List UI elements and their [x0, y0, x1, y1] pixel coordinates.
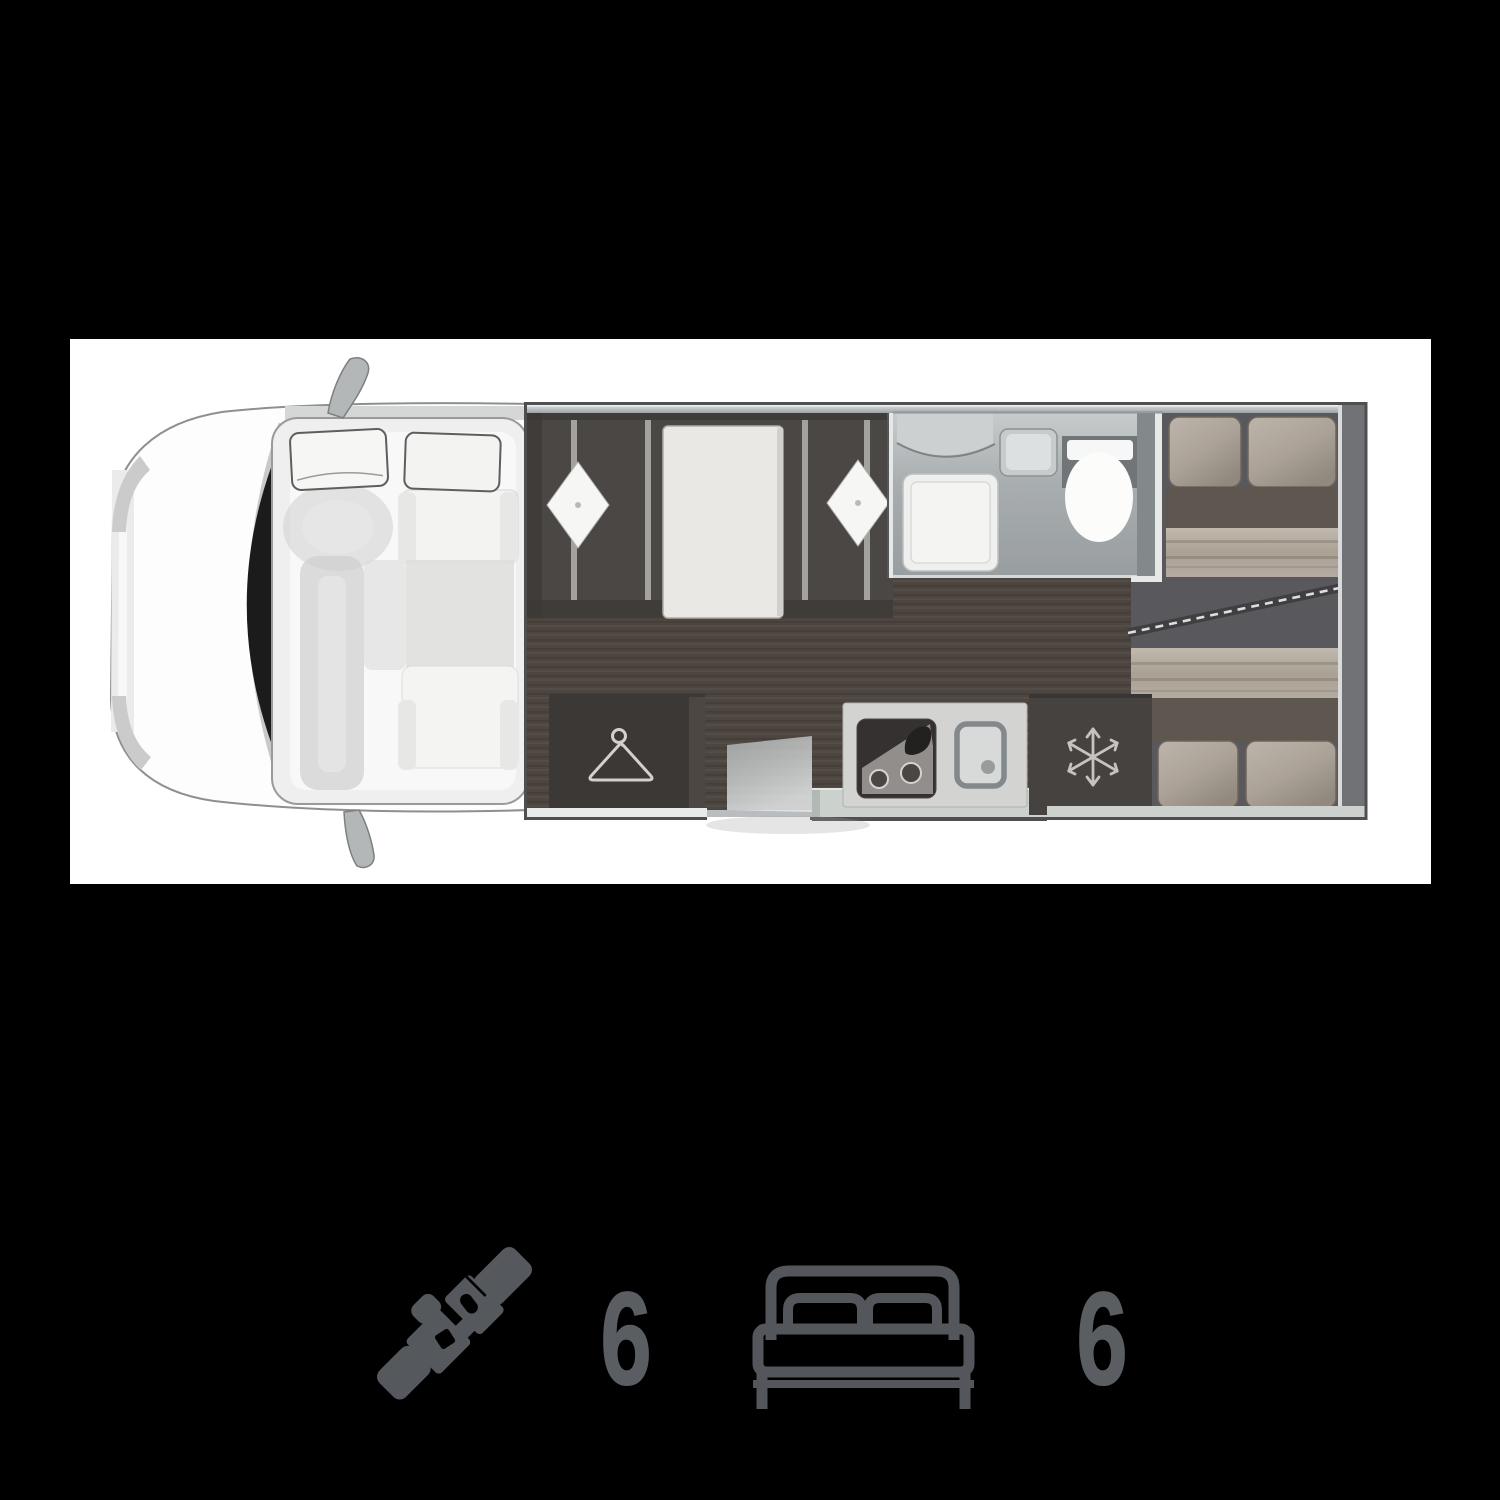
svg-text:6: 6: [1076, 1266, 1127, 1413]
svg-text:6: 6: [600, 1266, 651, 1413]
